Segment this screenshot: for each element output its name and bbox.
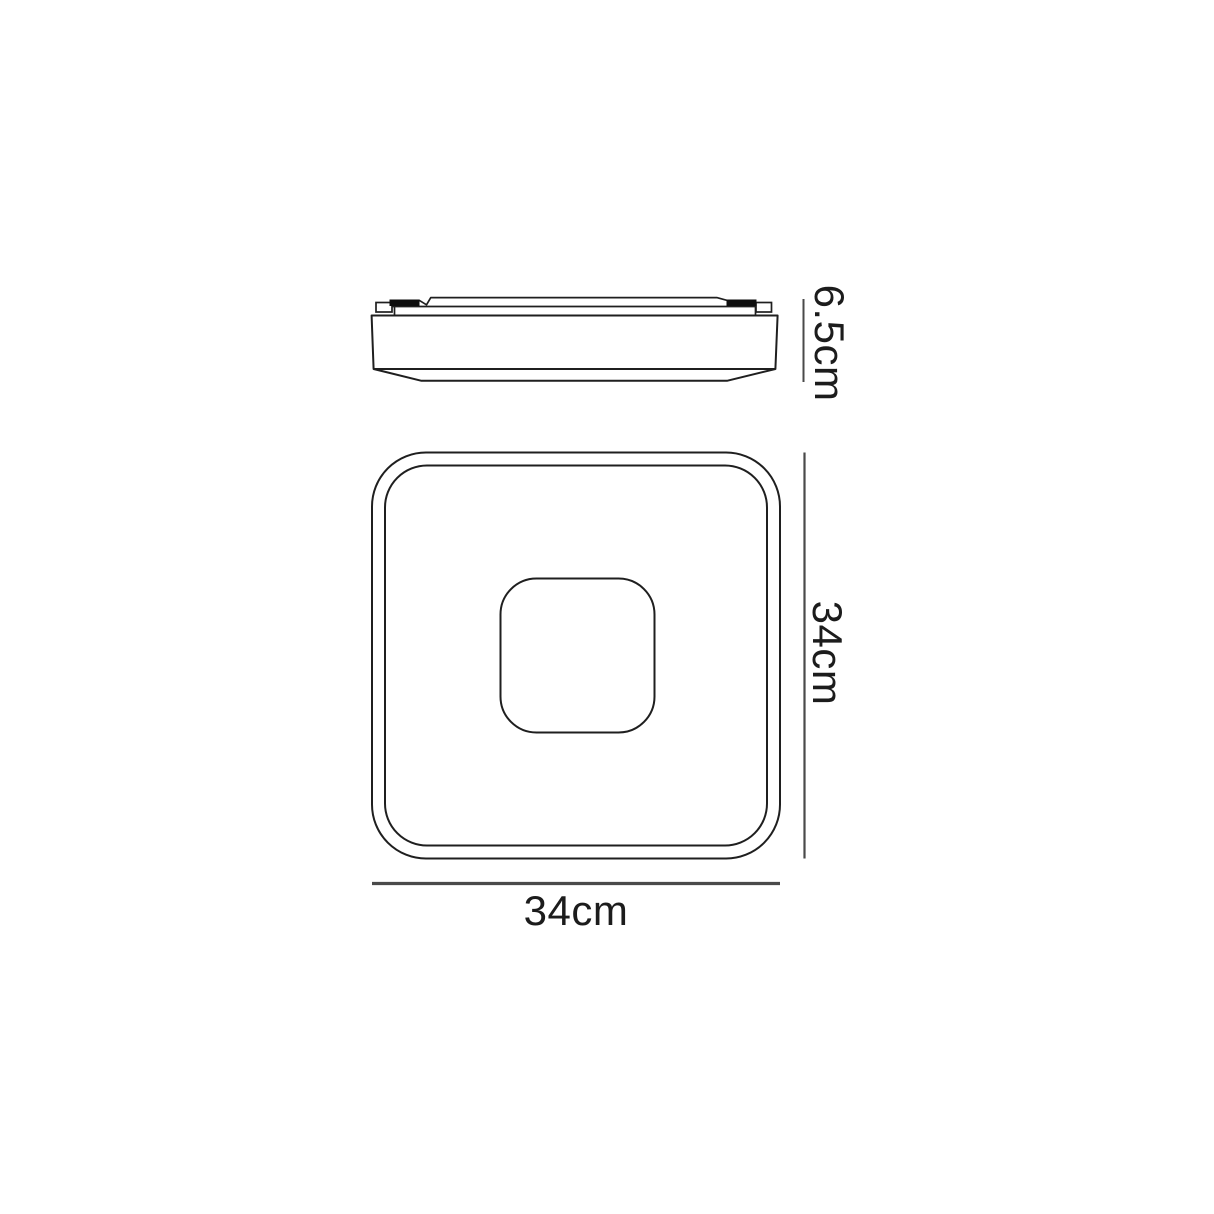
plan-outer-frame <box>372 453 780 859</box>
mounting-clip-left <box>390 300 420 307</box>
diffuser-outline <box>374 369 776 381</box>
end-cap-right <box>756 303 772 313</box>
ceiling-plate-top-edge <box>419 298 727 305</box>
dimension-diagram: 6.5cm 34cm 34cm <box>0 0 1214 1214</box>
plan-width-label: 34cm <box>524 890 629 932</box>
side-height-label: 6.5cm <box>808 285 850 402</box>
ceiling-plate-side-edges <box>395 307 756 316</box>
line-drawing <box>0 0 1214 1214</box>
mounting-clip-right <box>727 300 757 307</box>
plan-view <box>372 453 780 859</box>
plan-height-label: 34cm <box>806 601 848 706</box>
side-view <box>372 298 778 381</box>
fixture-body-outline <box>372 316 778 370</box>
